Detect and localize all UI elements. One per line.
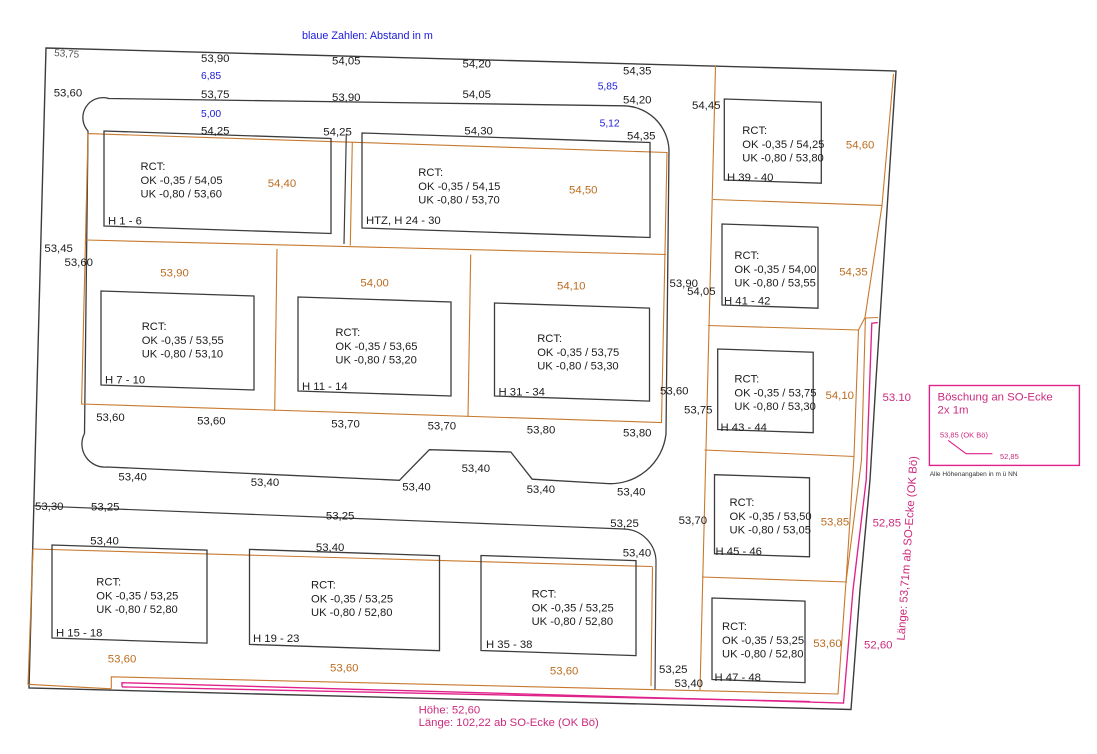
svg-text:H 35 - 38: H 35 - 38	[486, 639, 532, 651]
svg-text:UK -0,80 / 53,70: UK -0,80 / 53,70	[418, 195, 499, 207]
svg-text:54,30: 54,30	[464, 126, 493, 138]
svg-text:53,60: 53,60	[330, 663, 359, 675]
svg-text:54,10: 54,10	[557, 281, 586, 293]
svg-text:RCT:: RCT:	[96, 577, 121, 589]
svg-text:54,20: 54,20	[463, 59, 492, 71]
svg-text:OK -0,35 / 53,75: OK -0,35 / 53,75	[537, 347, 619, 359]
svg-text:UK -0,80 / 52,80: UK -0,80 / 52,80	[96, 604, 177, 616]
svg-text:RCT:: RCT:	[142, 321, 167, 333]
svg-text:UK -0,80 / 53,80: UK -0,80 / 53,80	[742, 153, 823, 165]
svg-text:Höhe: 52,60: Höhe: 52,60	[419, 705, 481, 717]
svg-text:RCT:: RCT:	[730, 497, 755, 509]
svg-text:H 11 - 14: H 11 - 14	[302, 381, 348, 393]
svg-text:OK -0,35 / 54,25: OK -0,35 / 54,25	[742, 139, 824, 151]
svg-text:53,60: 53,60	[813, 638, 842, 650]
svg-text:53,90: 53,90	[332, 92, 361, 104]
svg-text:Böschung an SO-Ecke: Böschung an SO-Ecke	[938, 392, 1053, 404]
svg-text:53,70: 53,70	[331, 419, 360, 431]
svg-text:53,60: 53,60	[197, 416, 226, 428]
svg-text:UK -0,80 / 53,30: UK -0,80 / 53,30	[537, 361, 618, 373]
svg-text:RCT:: RCT:	[532, 589, 557, 601]
svg-text:53,90: 53,90	[160, 268, 189, 280]
svg-text:OK -0,35 / 53,25: OK -0,35 / 53,25	[96, 591, 178, 603]
svg-text:53,75: 53,75	[54, 48, 80, 61]
svg-text:OK -0,35 / 53,55: OK -0,35 / 53,55	[142, 335, 224, 347]
svg-text:UK -0,80 / 53,55: UK -0,80 / 53,55	[734, 278, 815, 290]
svg-text:54,35: 54,35	[839, 267, 868, 279]
svg-text:53,40: 53,40	[316, 542, 345, 554]
svg-text:UK -0,80 / 53,05: UK -0,80 / 53,05	[730, 525, 811, 537]
svg-text:RCT:: RCT:	[734, 250, 759, 262]
svg-text:H 7 - 10: H 7 - 10	[105, 375, 145, 387]
svg-text:53,25: 53,25	[610, 518, 639, 530]
svg-text:OK -0,35 / 53,25: OK -0,35 / 53,25	[722, 635, 804, 647]
svg-text:OK -0,35 / 54,15: OK -0,35 / 54,15	[418, 181, 500, 193]
svg-text:54,25: 54,25	[201, 126, 230, 138]
svg-text:H 39 - 40: H 39 - 40	[727, 172, 773, 184]
svg-text:54,35: 54,35	[627, 131, 656, 143]
svg-text:53,60: 53,60	[550, 666, 579, 678]
svg-text:H 41 - 42: H 41 - 42	[724, 296, 770, 308]
svg-text:53,80: 53,80	[623, 428, 652, 440]
svg-text:Länge: 53,71m ab SO-Ecke (OK B: Länge: 53,71m ab SO-Ecke (OK Bö)	[896, 455, 921, 640]
svg-text:53,40: 53,40	[90, 536, 119, 548]
svg-text:54,60: 54,60	[846, 140, 875, 152]
svg-text:RCT:: RCT:	[311, 580, 336, 592]
svg-text:54,40: 54,40	[268, 178, 297, 190]
svg-text:RCT:: RCT:	[418, 167, 443, 179]
svg-text:53,70: 53,70	[428, 421, 457, 433]
svg-text:blaue Zahlen: Abstand in m: blaue Zahlen: Abstand in m	[302, 30, 433, 42]
svg-text:53,40: 53,40	[527, 484, 556, 496]
svg-text:53,60: 53,60	[660, 386, 689, 398]
svg-text:OK -0,35 / 54,00: OK -0,35 / 54,00	[734, 264, 816, 276]
svg-text:OK -0,35 / 53,50: OK -0,35 / 53,50	[730, 511, 812, 523]
svg-text:53,60: 53,60	[54, 88, 83, 100]
svg-text:H 45 - 46: H 45 - 46	[716, 546, 762, 558]
svg-text:RCT:: RCT:	[742, 125, 767, 137]
svg-text:H 19 - 23: H 19 - 23	[253, 633, 299, 645]
svg-text:Alle Höhenangaben in m ü NN: Alle Höhenangaben in m ü NN	[930, 471, 1018, 478]
svg-text:53,40: 53,40	[462, 463, 491, 475]
svg-text:UK -0,80 / 53,30: UK -0,80 / 53,30	[734, 401, 815, 413]
svg-text:OK -0,35 / 54,05: OK -0,35 / 54,05	[141, 175, 223, 187]
svg-text:H 15 - 18: H 15 - 18	[56, 628, 102, 640]
svg-text:53,40: 53,40	[623, 548, 652, 560]
svg-text:OK -0,35 / 53,65: OK -0,35 / 53,65	[335, 341, 417, 353]
svg-text:UK -0,80 / 52,80: UK -0,80 / 52,80	[532, 616, 613, 628]
svg-text:54,05: 54,05	[463, 89, 492, 101]
svg-text:OK -0,35 / 53,25: OK -0,35 / 53,25	[532, 603, 614, 615]
svg-text:5,85: 5,85	[598, 82, 618, 93]
svg-text:UK -0,80 / 53,20: UK -0,80 / 53,20	[335, 355, 416, 367]
svg-text:52,60: 52,60	[864, 640, 893, 652]
svg-text:53,85 (OK Bö): 53,85 (OK Bö)	[940, 431, 988, 440]
svg-text:53,60: 53,60	[96, 412, 125, 424]
svg-text:53,25: 53,25	[91, 502, 120, 514]
svg-text:53,90: 53,90	[201, 53, 230, 65]
svg-text:54,20: 54,20	[623, 95, 652, 107]
svg-text:52,85: 52,85	[873, 518, 902, 530]
svg-text:H 43 - 44: H 43 - 44	[721, 422, 767, 434]
svg-text:OK -0,35 / 53,75: OK -0,35 / 53,75	[734, 388, 816, 400]
svg-text:53,80: 53,80	[527, 425, 556, 437]
svg-text:53,40: 53,40	[251, 477, 280, 489]
svg-text:Länge: 102,22 ab SO-Ecke (OK B: Länge: 102,22 ab SO-Ecke (OK Bö)	[419, 717, 599, 729]
svg-text:54,25: 54,25	[323, 127, 352, 139]
svg-text:UK -0,80 / 52,80: UK -0,80 / 52,80	[722, 649, 803, 661]
svg-text:54,35: 54,35	[623, 66, 652, 78]
svg-text:6,85: 6,85	[201, 71, 221, 82]
svg-text:54,10: 54,10	[826, 390, 855, 402]
svg-text:52,85: 52,85	[1000, 452, 1019, 461]
svg-text:H 1 - 6: H 1 - 6	[108, 216, 142, 228]
svg-text:53,60: 53,60	[108, 654, 137, 666]
svg-text:53,30: 53,30	[35, 501, 64, 513]
svg-text:5,12: 5,12	[600, 119, 620, 130]
svg-text:RCT:: RCT:	[335, 327, 360, 339]
svg-text:H 31 - 34: H 31 - 34	[499, 387, 545, 399]
svg-text:54,50: 54,50	[569, 185, 598, 197]
svg-text:5,00: 5,00	[201, 109, 221, 120]
svg-text:UK -0,80 / 53,10: UK -0,80 / 53,10	[142, 349, 223, 361]
svg-text:53,75: 53,75	[201, 89, 230, 101]
svg-text:53,25: 53,25	[659, 664, 688, 676]
svg-text:53,40: 53,40	[675, 678, 704, 690]
svg-text:53,60: 53,60	[65, 257, 94, 269]
svg-text:53,40: 53,40	[118, 472, 147, 484]
svg-text:53,70: 53,70	[679, 515, 708, 527]
svg-text:H 47 - 48: H 47 - 48	[715, 672, 761, 684]
svg-text:UK -0,80 / 52,80: UK -0,80 / 52,80	[311, 607, 392, 619]
svg-text:54,05: 54,05	[332, 56, 361, 68]
svg-text:53,40: 53,40	[402, 482, 431, 494]
svg-text:UK -0,80 / 53,60: UK -0,80 / 53,60	[141, 189, 222, 201]
svg-text:RCT:: RCT:	[722, 621, 747, 633]
svg-text:HTZ, H 24 - 30: HTZ, H 24 - 30	[366, 215, 441, 227]
svg-text:53,85: 53,85	[821, 517, 850, 529]
svg-text:54,05: 54,05	[687, 286, 716, 298]
svg-text:OK -0,35 / 53,25: OK -0,35 / 53,25	[311, 594, 393, 606]
svg-text:53.10: 53.10	[883, 392, 912, 404]
svg-text:54,00: 54,00	[360, 278, 389, 290]
svg-text:53,40: 53,40	[617, 487, 646, 499]
svg-text:RCT:: RCT:	[734, 374, 759, 386]
svg-text:53,45: 53,45	[44, 243, 73, 255]
svg-text:53,25: 53,25	[326, 511, 355, 523]
svg-text:RCT:: RCT:	[537, 333, 562, 345]
svg-text:RCT:: RCT:	[141, 161, 166, 173]
svg-text:53,75: 53,75	[684, 405, 713, 417]
svg-text:54,45: 54,45	[692, 100, 721, 112]
svg-text:2x 1m: 2x 1m	[938, 405, 969, 417]
